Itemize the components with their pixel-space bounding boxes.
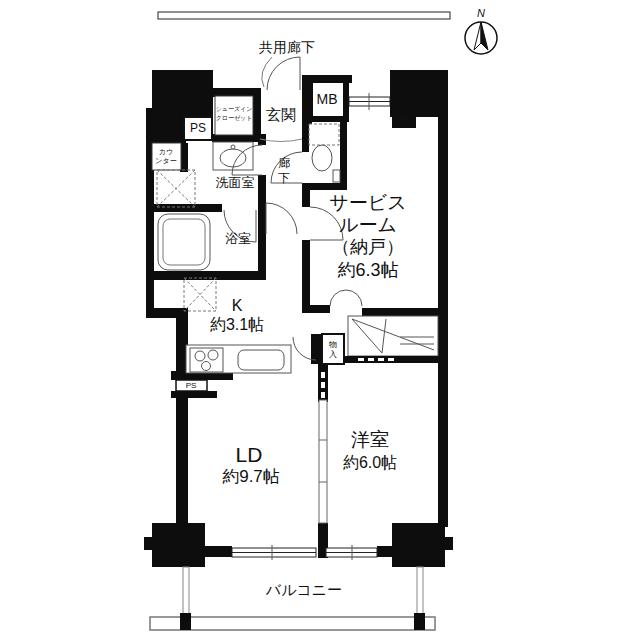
balcony-post-foot-left bbox=[180, 613, 191, 630]
wall-toilet-bottom bbox=[302, 183, 347, 190]
fridge-space-icon bbox=[184, 278, 216, 311]
wall-left-upper bbox=[146, 108, 154, 318]
counter-label-line2: ンター bbox=[155, 157, 176, 165]
closet-folding-doors bbox=[348, 316, 438, 356]
closet-track-dash bbox=[388, 358, 394, 361]
burner-icon bbox=[195, 351, 205, 361]
closet-track-dash bbox=[368, 358, 374, 361]
corridor-leader-line bbox=[262, 57, 272, 87]
wall-service-south bbox=[302, 305, 330, 313]
corridor-railing bbox=[158, 12, 450, 19]
storage-small-label-char2: 入 bbox=[329, 350, 337, 359]
kitchen-sink-icon bbox=[238, 350, 284, 370]
living-dining-label: LD bbox=[236, 443, 263, 466]
wall-pillar-bottom-left bbox=[152, 523, 205, 567]
wall-segment bbox=[445, 537, 453, 550]
western-room-label: 洋室 bbox=[351, 429, 389, 450]
closet-track-dash bbox=[358, 358, 364, 361]
common-corridor-label: 共用廊下 bbox=[259, 39, 315, 55]
pipe-space-service-label: PS bbox=[398, 114, 410, 124]
entrance-door-swing bbox=[267, 57, 300, 90]
wall-right bbox=[438, 117, 448, 527]
shoes-closet-label-line2: クローゼット bbox=[216, 115, 253, 121]
western-room-size-label: 約6.0帖 bbox=[343, 454, 397, 471]
counter-label-line1: カウ bbox=[159, 148, 173, 155]
wall-bath-top bbox=[146, 204, 222, 212]
bathroom-label: 浴室 bbox=[225, 231, 251, 246]
sliding-partition-door bbox=[319, 400, 327, 523]
hall-door-swing bbox=[266, 203, 297, 234]
wall-closet-top bbox=[362, 308, 438, 316]
toilet-bowl-icon bbox=[312, 145, 332, 171]
wall-segment bbox=[302, 190, 310, 207]
shoes-closet-label-line1: シューズイン bbox=[216, 106, 253, 112]
balcony-label: バルコニー bbox=[265, 581, 342, 598]
kitchen-size-label: 約3.1帖 bbox=[210, 316, 264, 333]
compass-icon: N bbox=[465, 7, 497, 54]
wall-segment bbox=[171, 391, 217, 398]
balcony-post-left bbox=[183, 567, 189, 617]
burner-icon bbox=[202, 362, 211, 371]
toilet-shelf bbox=[309, 124, 339, 145]
sink-basin-icon bbox=[220, 149, 246, 167]
balcony-structure bbox=[150, 567, 435, 630]
partition-detail bbox=[321, 382, 325, 388]
living-dining-size-label: 約9.7帖 bbox=[222, 467, 280, 486]
washroom-label: 洗面室 bbox=[216, 175, 255, 190]
pipe-space-entrance-label: PS bbox=[190, 121, 206, 135]
meter-box-label: MB bbox=[317, 91, 338, 107]
washer-space-icon bbox=[157, 170, 195, 207]
storage-small-label-char1: 物 bbox=[328, 340, 337, 349]
wall-hall-west bbox=[258, 175, 266, 278]
wall-bath-bottom bbox=[146, 271, 266, 280]
service-room-label-line2: ルーム bbox=[339, 214, 397, 235]
entrance-step-line bbox=[260, 139, 302, 142]
floor-plan-canvas: N bbox=[0, 0, 640, 640]
wall-service-left bbox=[302, 240, 310, 313]
service-double-door-swing bbox=[330, 290, 362, 306]
service-room-label-line3: （納戸） bbox=[332, 237, 404, 257]
balcony-post-right bbox=[417, 567, 423, 617]
wall-pillar-bottom-right bbox=[392, 523, 445, 567]
bathtub-icon bbox=[158, 214, 210, 270]
wall-toilet-left bbox=[302, 124, 309, 152]
partition-detail bbox=[321, 372, 325, 378]
wall-segment bbox=[377, 546, 392, 557]
kitchen-label: K bbox=[232, 297, 243, 314]
service-room-label-line1: サービス bbox=[329, 192, 406, 213]
hallway-label-char2: 下 bbox=[278, 171, 290, 185]
partition-detail bbox=[321, 392, 325, 398]
entrance-label: 玄関 bbox=[266, 106, 296, 123]
wall-segment bbox=[144, 537, 152, 550]
wall-segment bbox=[205, 546, 232, 557]
pipe-space-kitchen-label: PS bbox=[186, 381, 197, 390]
burner-icon bbox=[208, 350, 218, 360]
balcony-railing bbox=[150, 617, 435, 630]
wall-pillar-top-right bbox=[390, 70, 448, 117]
compass-north-label: N bbox=[477, 7, 485, 19]
faucet-icon bbox=[231, 145, 235, 149]
closet-track-dash bbox=[378, 358, 384, 361]
service-room-size-label: 約6.3帖 bbox=[337, 260, 398, 280]
hallway-label-char1: 廊 bbox=[278, 156, 290, 170]
balcony-post-foot-right bbox=[414, 613, 425, 630]
toilet-control-icon bbox=[333, 170, 340, 182]
